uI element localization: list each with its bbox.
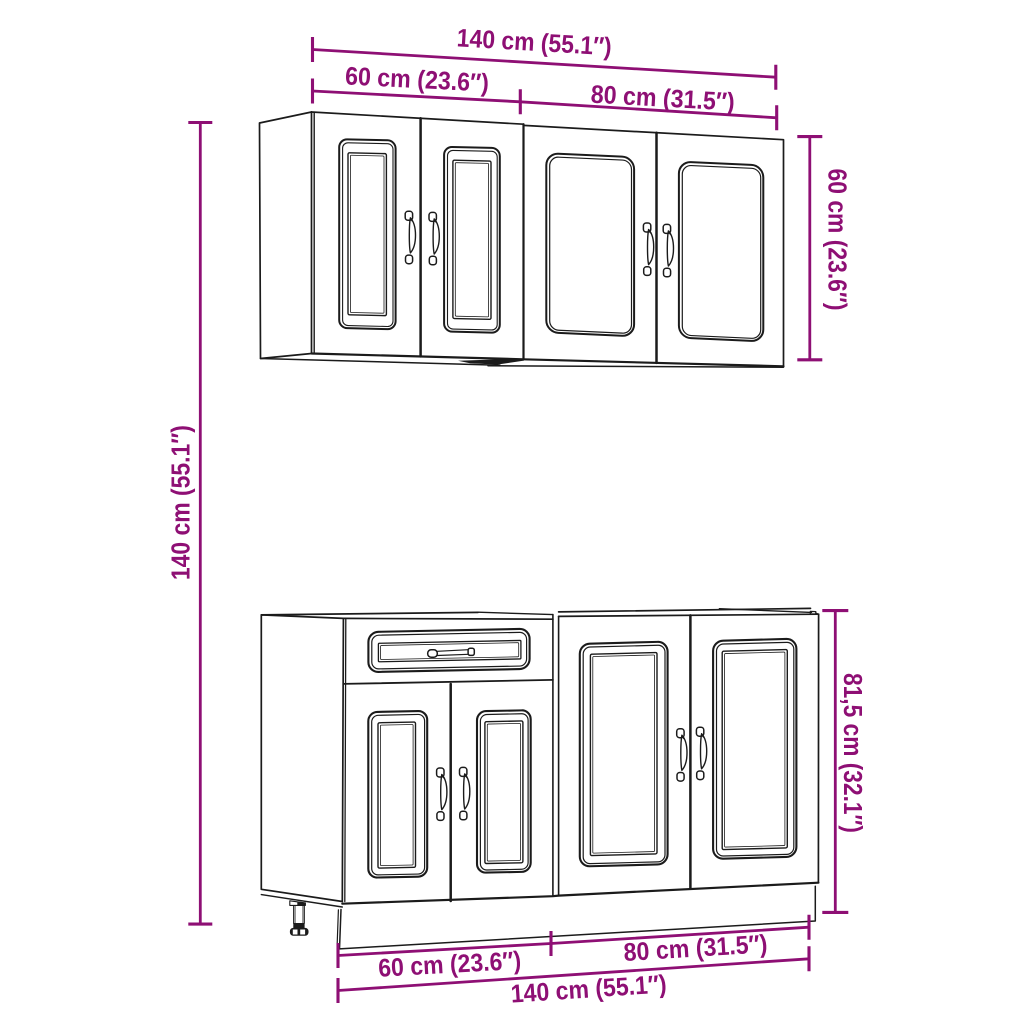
svg-text:60 cm (23.6″): 60 cm (23.6″) bbox=[823, 169, 851, 311]
svg-text:81,5 cm (32.1″): 81,5 cm (32.1″) bbox=[838, 673, 866, 833]
svg-text:140 cm (55.1″): 140 cm (55.1″) bbox=[168, 425, 196, 580]
